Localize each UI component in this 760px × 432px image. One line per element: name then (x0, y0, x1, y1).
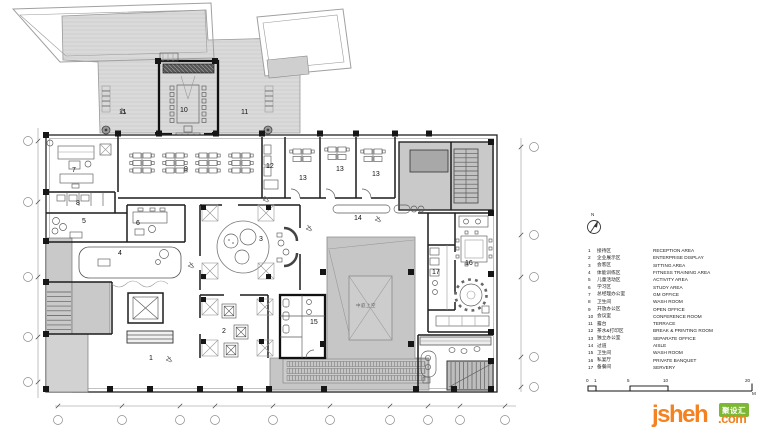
legend-item-no: 2 (588, 255, 597, 260)
legend-item-zh: 私宴厅 (597, 357, 653, 363)
legend-item-zh: 体能训练区 (597, 270, 653, 276)
watermark-brand: jsheh (652, 401, 707, 429)
legend-item-en: CONFERENCE ROOM (653, 314, 758, 319)
legend-item-zh: 总经理办公室 (597, 291, 653, 297)
scale-bar (588, 384, 752, 392)
room-label: 1 (149, 355, 153, 362)
room-label: 13 (372, 171, 380, 178)
legend-item: 15卫生间WASH ROOM (588, 349, 758, 356)
legend-item-en: WASH ROOM (653, 350, 758, 355)
room-label: 13 (299, 175, 307, 182)
room-label: 6 (136, 220, 140, 227)
legend-item-en: OPEN OFFICE (653, 307, 758, 312)
legend-item-zh: 露台 (597, 321, 653, 327)
building (46, 135, 497, 392)
legend-item: 8卫生间WASH ROOM (588, 298, 758, 305)
legend-item-en: SEPARATE OFFICE (653, 336, 758, 341)
room-label: 9 (184, 166, 188, 173)
room-label: 4 (118, 250, 122, 257)
legend-item: 13独立办公室SEPARATE OFFICE (588, 335, 758, 342)
north-label: N (591, 212, 594, 217)
legend-item: 16私宴厅PRIVATE BANQUET (588, 356, 758, 363)
legend-item-no: 16 (588, 358, 597, 363)
legend-item-zh: 开放办公区 (597, 306, 653, 312)
legend-item-en: SERVERY (653, 365, 758, 370)
legend-item-no: 17 (588, 365, 597, 370)
legend-item-no: 7 (588, 292, 597, 297)
legend-item-en: PRIVATE BANQUET (653, 358, 758, 363)
legend-item-zh: 卫生间 (597, 299, 653, 305)
legend-item-en: ENTERPRISE DISPLAY (653, 255, 758, 260)
room-label: 17 (432, 269, 440, 276)
room-label: 2 (222, 328, 226, 335)
legend-item-no: 1 (588, 248, 597, 253)
room-label: 11 (241, 109, 248, 116)
legend-item-no: 10 (588, 314, 597, 319)
legend-item: 11露台TERRACE (588, 320, 758, 327)
legend-item-zh: 学习区 (597, 284, 653, 290)
legend-item-en: WASH ROOM (653, 299, 758, 304)
legend-item-en: AISLE (653, 343, 758, 348)
legend-item-no: 11 (588, 321, 597, 326)
room-label: 7 (72, 167, 76, 174)
legend-item-no: 15 (588, 350, 597, 355)
room-label: 10 (180, 107, 188, 114)
legend-item-zh: 儿童活动区 (597, 277, 653, 283)
legend-item: 5儿童活动区ACTIVITY AREA (588, 276, 758, 283)
legend-item: 17备餐间SERVERY (588, 364, 758, 371)
legend-item-no: 6 (588, 285, 597, 290)
legend-item-no: 12 (588, 328, 597, 333)
room-label: 16 (465, 260, 473, 267)
legend-item: 2企业展示区ENTERPRISE DISPLAY (588, 254, 758, 261)
legend-item-zh: 卫生间 (597, 350, 653, 356)
legend-item-zh: 过道 (597, 343, 653, 349)
legend-item-zh: 茶水&打印区 (597, 328, 653, 334)
legend-item: 14过道AISLE (588, 342, 758, 349)
room-label: 8 (76, 200, 80, 207)
legend-item: 6学习区STUDY AREA (588, 283, 758, 290)
legend-item: 9开放办公区OPEN OFFICE (588, 305, 758, 312)
legend-item-zh: 备餐间 (597, 364, 653, 370)
room-label: 14 (354, 215, 362, 222)
legend-item-no: 3 (588, 263, 597, 268)
legend-item-en: ACTIVITY AREA (653, 277, 758, 282)
room-label: 12 (266, 163, 274, 170)
legend-item-no: 9 (588, 307, 597, 312)
legend-item-no: 5 (588, 277, 597, 282)
legend-item-zh: 企业展示区 (597, 255, 653, 261)
legend-item-no: 8 (588, 299, 597, 304)
courtyard-void-label: 中庭上空 (356, 303, 376, 309)
room-label: 3 (259, 236, 263, 243)
legend-items: 1接待区RECEPTION AREA2企业展示区ENTERPRISE DISPL… (588, 247, 758, 371)
scale-tick-label: 5 (627, 378, 630, 383)
scale-tick-label: 10 (663, 378, 668, 383)
legend-item-no: 4 (588, 270, 597, 275)
legend-item-en: TERRACE (653, 321, 758, 326)
scale-tick-label: 20 (745, 378, 750, 383)
room-label: 15 (310, 319, 318, 326)
legend-item: 1接待区RECEPTION AREA (588, 247, 758, 254)
legend-item: 4体能训练区FITNESS TRAINING AREA (588, 269, 758, 276)
legend-item-zh: 独立办公室 (597, 335, 653, 341)
legend-item-zh: 会议室 (597, 313, 653, 319)
scale-unit: M (752, 391, 756, 396)
room-label: 11 (119, 109, 126, 116)
legend-item-en: RECEPTION AREA (653, 248, 758, 253)
legend-item-no: 14 (588, 343, 597, 348)
legend-item-en: GM OFFICE (653, 292, 758, 297)
legend-item: 3会客区SITTING AREA (588, 262, 758, 269)
legend-item-en: STUDY AREA (653, 285, 758, 290)
scale-tick-label: 1 (594, 378, 597, 383)
legend-item-en: FITNESS TRAINING AREA (653, 270, 758, 275)
watermark-tld: .com (718, 411, 746, 426)
legend-item-en: SITTING AREA (653, 263, 758, 268)
north-arrow-icon (588, 221, 601, 234)
legend-item-zh: 会客区 (597, 262, 653, 268)
scale-tick-label: 0 (586, 378, 589, 383)
room-label: 5 (82, 218, 86, 225)
legend-item-zh: 接待区 (597, 248, 653, 254)
legend-item-en: BREAK & PRINTING ROOM (653, 328, 758, 333)
legend-item: 12茶水&打印区BREAK & PRINTING ROOM (588, 327, 758, 334)
room-label: 13 (336, 166, 344, 173)
legend-item: 7总经理办公室GM OFFICE (588, 291, 758, 298)
legend-item: 10会议室CONFERENCE ROOM (588, 313, 758, 320)
floor-plan-page: 1111107891213131356432115141617 中庭上空 N 1… (0, 0, 760, 432)
legend-item-no: 13 (588, 336, 597, 341)
